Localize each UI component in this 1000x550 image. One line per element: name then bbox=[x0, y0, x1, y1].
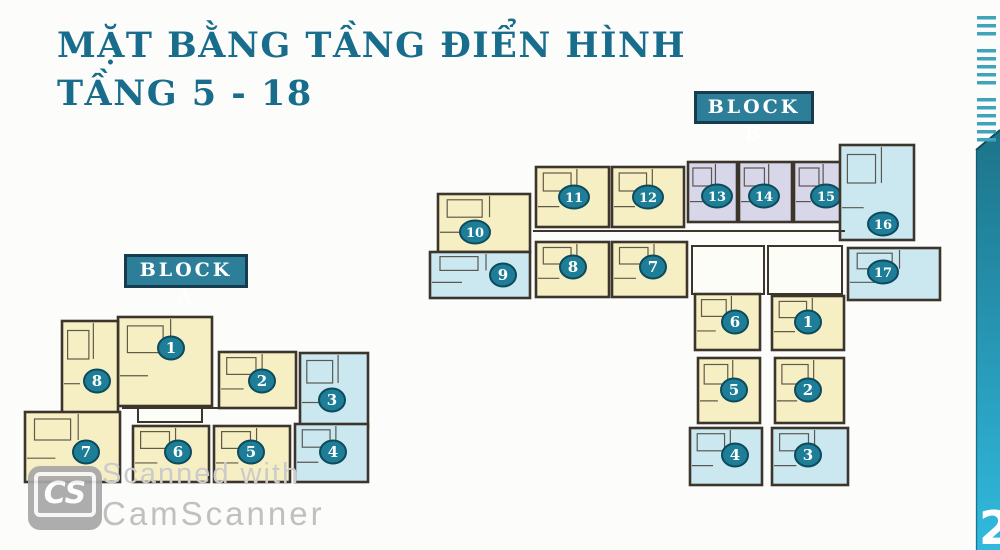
page-number: 2 bbox=[979, 501, 1000, 550]
edge-mark bbox=[977, 65, 996, 69]
unit-number: 7 bbox=[81, 443, 91, 461]
unit-outline bbox=[118, 317, 212, 406]
block-a-unit-1: 1 bbox=[118, 317, 212, 406]
unit-number: 3 bbox=[803, 446, 813, 464]
unit-number: 11 bbox=[565, 191, 583, 206]
edge-mark bbox=[977, 130, 996, 134]
unit-number: 10 bbox=[466, 226, 484, 241]
edge-mark bbox=[977, 49, 996, 53]
block-a-plan: 18237654 bbox=[25, 317, 368, 482]
unit-number: 5 bbox=[246, 443, 256, 461]
unit-number: 8 bbox=[568, 258, 578, 276]
block-b-unit-17: 17 bbox=[848, 248, 940, 300]
edge-mark bbox=[977, 57, 996, 61]
block-a-unit-2: 2 bbox=[219, 352, 296, 408]
block-b-unit-6: 6 bbox=[695, 294, 760, 350]
page-edge-bar bbox=[976, 130, 1000, 550]
unit-number: 12 bbox=[639, 191, 657, 206]
unit-number: 9 bbox=[498, 266, 508, 284]
block-a-unit-7: 7 bbox=[25, 412, 120, 482]
block-b-unit-7: 7 bbox=[612, 242, 687, 297]
unit-outline bbox=[62, 321, 118, 416]
edge-mark bbox=[977, 98, 996, 102]
unit-number: 1 bbox=[166, 339, 176, 357]
unit-number: 1 bbox=[803, 313, 813, 331]
block-b-unit-13: 13 bbox=[688, 162, 737, 222]
unit-number: 17 bbox=[874, 266, 892, 281]
unit-number: 3 bbox=[327, 391, 337, 409]
block-a-unit-6: 6 bbox=[133, 426, 209, 482]
core-room-outline bbox=[692, 246, 764, 294]
unit-number: 2 bbox=[803, 381, 813, 399]
edge-mark bbox=[977, 81, 996, 85]
edge-mark bbox=[977, 106, 996, 110]
block-a-unit-3: 3 bbox=[300, 353, 368, 428]
block-b-unit-14: 14 bbox=[739, 162, 792, 222]
block-b-unit-11: 11 bbox=[536, 167, 609, 227]
edge-mark bbox=[977, 24, 996, 28]
edge-mark bbox=[977, 114, 996, 118]
block-b-unit-3: 3 bbox=[772, 428, 848, 485]
unit-number: 13 bbox=[708, 190, 726, 205]
scanned-floor-plan-page: MẶT BẰNG TẦNG ĐIỂN HÌNH TẦNG 5 - 18 BLOC… bbox=[0, 0, 1000, 550]
block-b-unit-8: 8 bbox=[536, 242, 609, 297]
edge-mark bbox=[977, 32, 996, 36]
unit-number: 6 bbox=[173, 443, 183, 461]
block-a-unit-8: 8 bbox=[62, 321, 118, 416]
block-b-unit-1: 1 bbox=[772, 296, 844, 350]
block-a-unit-5: 5 bbox=[214, 426, 290, 482]
block-b-unit-9: 9 bbox=[430, 252, 530, 298]
unit-number: 6 bbox=[730, 313, 740, 331]
unit-number: 15 bbox=[817, 190, 835, 205]
unit-number: 14 bbox=[755, 190, 773, 205]
unit-number: 4 bbox=[730, 446, 740, 464]
block-b-unit-12: 12 bbox=[612, 167, 684, 227]
unit-number: 16 bbox=[874, 218, 892, 233]
edge-mark bbox=[977, 73, 996, 77]
block-b-unit-10: 10 bbox=[438, 194, 530, 252]
unit-number: 4 bbox=[328, 443, 338, 461]
block-b-plan: 1091112131415168717615243 bbox=[430, 145, 940, 485]
block-b-unit-2: 2 bbox=[775, 358, 844, 423]
core-room-outline bbox=[768, 246, 842, 294]
block-a-unit-4: 4 bbox=[295, 424, 368, 482]
scan-page-edge: 2 bbox=[976, 16, 1000, 550]
unit-number: 5 bbox=[729, 381, 739, 399]
unit-number: 8 bbox=[92, 372, 102, 390]
edge-mark bbox=[977, 138, 996, 142]
edge-mark bbox=[977, 16, 996, 20]
block-b-unit-15: 15 bbox=[794, 162, 846, 222]
unit-number: 7 bbox=[648, 258, 658, 276]
edge-mark bbox=[977, 122, 996, 126]
block-b-unit-5: 5 bbox=[698, 358, 760, 423]
block-b-unit-4: 4 bbox=[690, 428, 762, 485]
unit-number: 2 bbox=[257, 372, 267, 390]
block-b-unit-16: 16 bbox=[840, 145, 914, 240]
unit-outline bbox=[25, 412, 120, 482]
floor-plan-canvas: 1823765410911121314151687176152432 bbox=[0, 0, 1000, 550]
